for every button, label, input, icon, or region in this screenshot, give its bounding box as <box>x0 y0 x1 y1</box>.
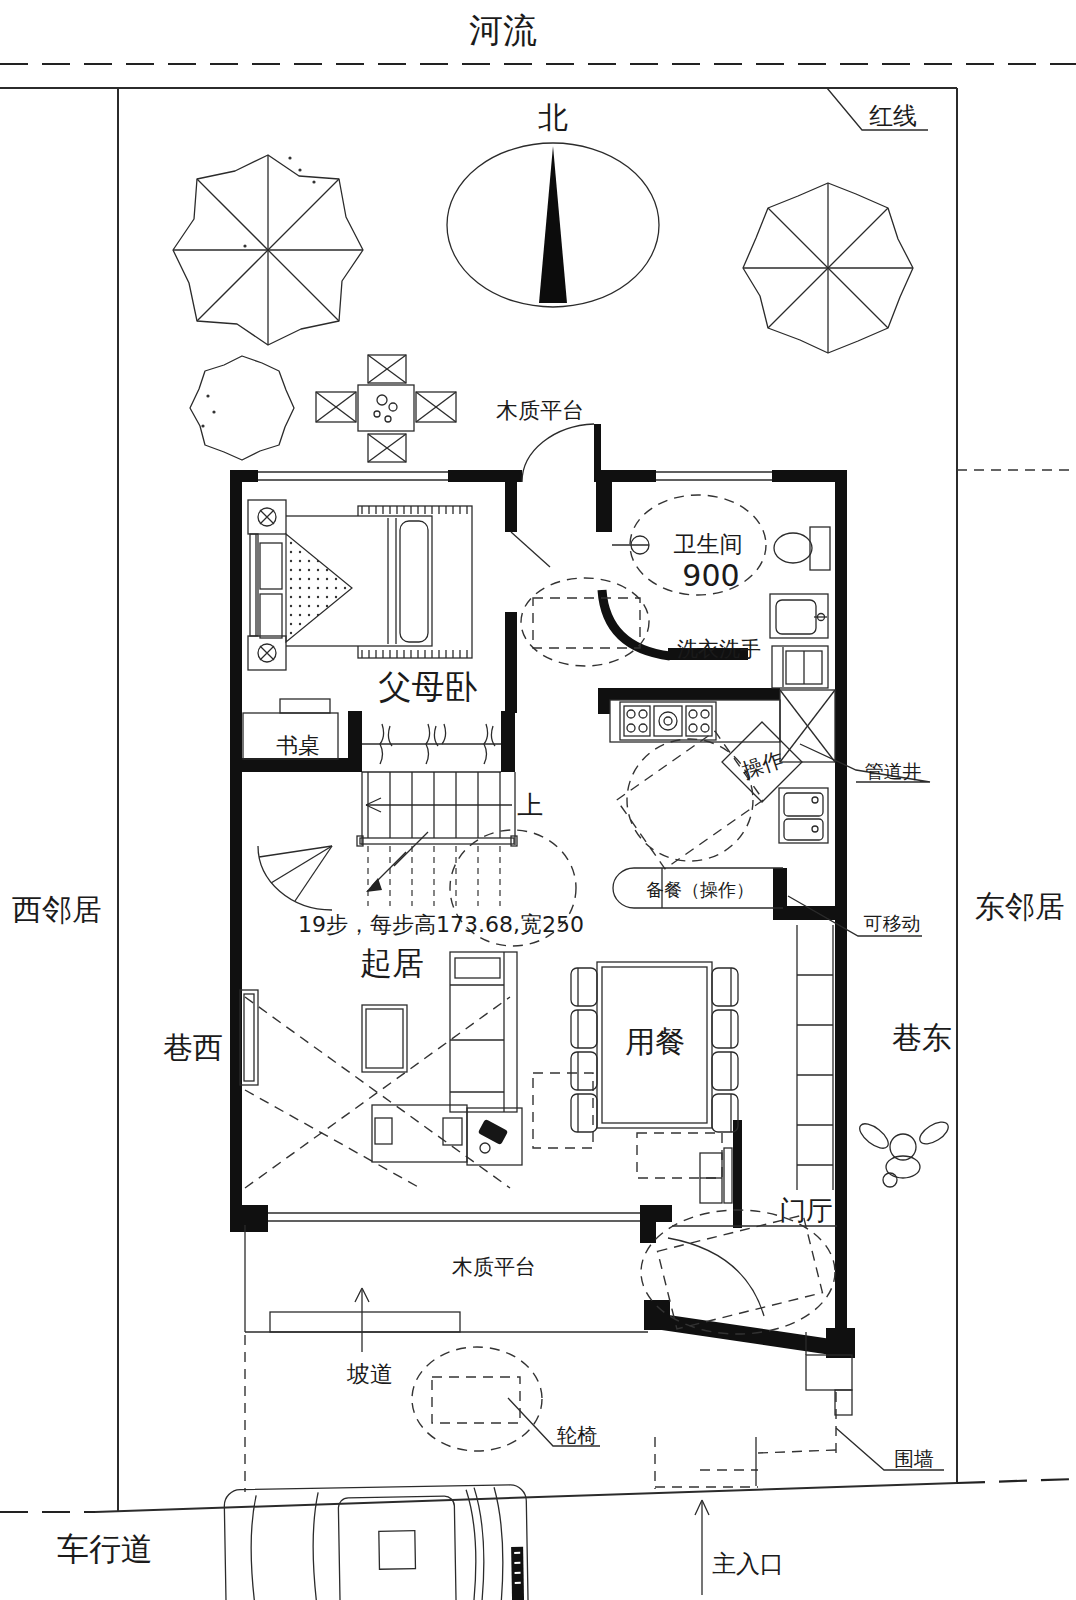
label-deck-north: 木质平台 <box>496 398 584 423</box>
hall-turning-circle <box>521 578 649 666</box>
north-compass <box>447 143 659 307</box>
label-pipe-shaft: 管道井 <box>865 760 922 782</box>
main-entrance-arrow <box>695 1500 709 1595</box>
label-driveway: 车行道 <box>57 1530 153 1568</box>
tree-small-west <box>190 356 294 460</box>
coffee-table <box>362 1005 407 1072</box>
label-worktop: 操作 <box>739 747 786 783</box>
future-furniture-dashed <box>533 1073 593 1148</box>
kitchen-turning-circle <box>617 731 763 869</box>
tree-large-west <box>173 155 363 345</box>
label-west-neighbor: 西邻居 <box>12 892 102 927</box>
label-prep-counter: 备餐（操作） <box>646 879 754 900</box>
kitchen-sink <box>779 788 828 843</box>
patio-table-set <box>316 355 456 462</box>
tree-east <box>743 183 913 353</box>
label-main-entrance: 主入口 <box>712 1550 784 1578</box>
floor-plan-drawing: 河流 北 红线 木质平台 卫生间 900 洗衣洗手 父母卧 书桌 操作 管道井 … <box>0 0 1076 1600</box>
label-foyer: 门厅 <box>779 1195 833 1226</box>
label-red-line: 红线 <box>869 102 917 130</box>
label-alley-west: 巷西 <box>163 1030 223 1065</box>
south-deck <box>245 1225 648 1352</box>
label-movable: 可移动 <box>864 912 921 934</box>
label-river: 河流 <box>469 10 537 50</box>
east-wall-cabinet <box>797 925 833 1190</box>
label-parents-bedroom: 父母卧 <box>379 667 478 706</box>
label-bathroom: 卫生间 <box>674 531 743 557</box>
site-boundary <box>0 64 1076 1512</box>
kitchen-counter <box>610 700 780 742</box>
label-laundry: 洗衣洗手 <box>677 637 761 661</box>
double-bed <box>248 500 432 670</box>
label-north: 北 <box>538 100 568 135</box>
staircase <box>258 772 517 910</box>
label-stairs-note: 19步，每步高173.68,宽250 <box>298 912 584 937</box>
label-dining: 用餐 <box>625 1024 685 1059</box>
label-east-neighbor: 东邻居 <box>975 889 1065 924</box>
end-table-phone <box>467 1108 522 1165</box>
site-plan-page: 河流 北 红线 木质平台 卫生间 900 洗衣洗手 父母卧 书桌 操作 管道井 … <box>0 0 1076 1600</box>
dining-dashed-rect <box>637 1133 722 1178</box>
label-wheelchair: 轮椅 <box>557 1423 597 1447</box>
label-alley-east: 巷东 <box>892 1020 952 1055</box>
laundry-fixtures <box>770 594 828 688</box>
label-desk: 书桌 <box>276 733 320 758</box>
tv-cabinet <box>240 990 258 1085</box>
label-bathroom-radius: 900 <box>682 558 739 593</box>
label-living: 起居 <box>360 944 424 982</box>
person-figure <box>856 1118 952 1187</box>
pipe-shaft <box>780 690 835 762</box>
wardrobe <box>362 724 501 772</box>
label-fence: 围墙 <box>894 1447 934 1471</box>
label-stairs-up: 上 <box>517 790 543 820</box>
label-deck-south: 木质平台 <box>452 1255 536 1279</box>
label-ramp: 坡道 <box>346 1361 393 1387</box>
